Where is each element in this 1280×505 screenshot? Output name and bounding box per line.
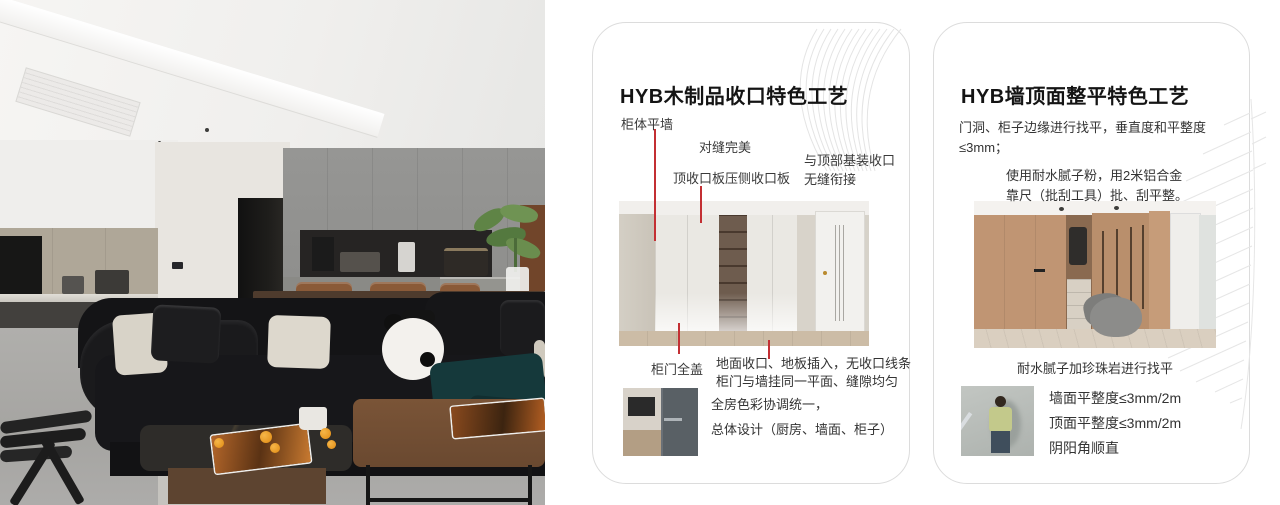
espresso-machine [312,237,334,271]
callout-top-joint-line1: 与顶部基装收口 [804,153,895,168]
cup-shelf [340,252,380,272]
white-mug [299,407,327,430]
callout-top-joint: 与顶部基装收口 无缝衔接 [804,151,895,189]
callout-perfect-seam: 对缝完美 [699,137,751,156]
interior-thumbnail [623,388,698,456]
white-door [1170,213,1201,337]
coffee-machine [398,242,415,272]
callout-top-closing-board: 顶收口板压侧收口板 [673,168,790,187]
craft-card-wall-leveling: HYB墙顶面整平特色工艺 门洞、柜子边缘进行找平，垂直度和平整度≤3mm； 使用… [933,22,1250,484]
note-color-1: 全房色彩协调统一， [711,394,828,413]
paragraph-putty-line1: 使用耐水腻子粉，用2米铝合金 [1006,168,1182,183]
door-handle [1034,269,1045,272]
note-color-2: 总体设计（厨房、墙面、柜子） [711,419,893,438]
wardrobe-render-image [619,201,869,346]
bullet-ceiling-flatness: 顶面平整度≤3mm/2m [1049,413,1181,433]
card-title: HYB木制品收口特色工艺 [620,80,848,109]
callout-top-joint-line2: 无缝衔接 [804,172,856,187]
wood-room-render-image [974,201,1216,348]
leader-line [678,323,680,354]
paragraph-putty-line2: 靠尺（批刮工具）批、刮平整。 [1006,188,1188,203]
hanging-clothes [1069,227,1087,265]
kitchen-appliance [0,236,42,296]
worker-thumbnail [961,386,1034,456]
poster-page: HYB木制品收口特色工艺 柜体平墙 对缝完美 顶收口板压侧收口板 与顶部基装收口… [0,0,1280,505]
orange-fruit [214,438,224,448]
orange-fruit [327,440,336,449]
card-title: HYB墙顶面整平特色工艺 [961,80,1189,109]
counter-appliance [62,276,84,294]
bullet-corners-straight: 阴阳角顺直 [1049,438,1119,458]
spotlight [205,128,209,132]
leader-line [654,129,656,241]
door-knob [823,271,827,275]
ceiling-left [0,140,178,235]
caption-putty-perlite: 耐水腻子加珍珠岩进行找平 [974,358,1216,377]
note-floor-closing-2: 柜门与墙挂同一平面、缝隙均匀 [716,371,898,390]
callout-full-cover-door: 柜门全盖 [651,359,703,378]
light-switch [172,262,183,269]
table-leg-bar [366,498,532,502]
glass-pane [1199,215,1216,335]
sling-chair [0,408,96,505]
callout-cabinet-flush-wall: 柜体平墙 [621,114,673,133]
aluminum-ruler [961,412,972,456]
vintage-speaker [444,248,488,276]
cream-pillow [267,315,331,369]
paragraph-leveling: 门洞、柜子边缘进行找平，垂直度和平整度≤3mm； [959,118,1211,158]
black-pillow [151,304,222,363]
note-floor-closing-1: 地面收口、地板插入，无收口线条 [716,353,911,372]
leader-line [768,340,770,359]
paragraph-putty: 使用耐水腻子粉，用2米铝合金 靠尺（批刮工具）批、刮平整。 [1006,166,1188,206]
orange-fruit [260,431,272,443]
bean-bag [1090,297,1142,337]
counter-appliance [95,270,129,294]
orange-fruit [270,443,280,453]
leader-line [700,186,702,223]
orange-fruit [320,428,331,439]
living-room-photo [0,0,545,505]
craft-card-wood-closing: HYB木制品收口特色工艺 柜体平墙 对缝完美 顶收口板压侧收口板 与顶部基装收口… [592,22,910,484]
stone-table-base [168,468,326,504]
bullet-wall-flatness: 墙面平整度≤3mm/2m [1049,388,1181,408]
